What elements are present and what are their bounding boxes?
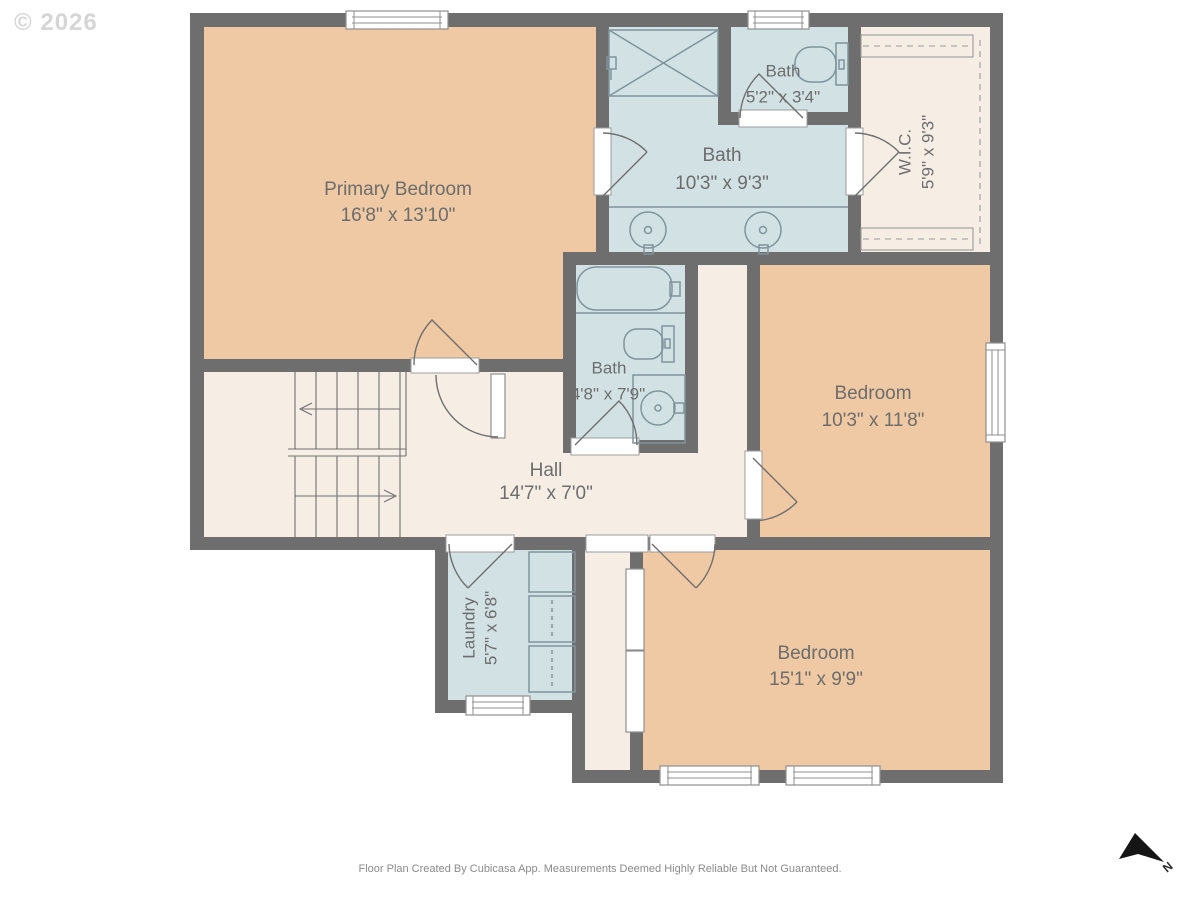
closet-door-panel <box>626 651 644 732</box>
door-opening <box>745 451 762 519</box>
window <box>466 696 530 715</box>
room-dims-wic: 5'9" x 9'3" <box>918 115 937 189</box>
door-opening <box>571 438 639 455</box>
floor-plan: Primary Bedroom 16'8" x 13'10" Bath 10'3… <box>0 0 1200 900</box>
room-label-hall: Hall <box>530 460 563 481</box>
room-dims-bedroom-south: 15'1" x 9'9" <box>769 669 863 690</box>
room-label-bedroom-east: Bedroom <box>834 383 911 404</box>
room-dims-bedroom-east: 10'3" x 11'8" <box>822 410 925 431</box>
room-label-bath-main: Bath <box>702 145 741 166</box>
room-dims-hall: 14'7" x 7'0" <box>499 483 593 504</box>
closet-door-panel <box>626 569 644 650</box>
compass-north-icon <box>1119 833 1164 862</box>
room-dims-bath-middle: 4'8" x 7'9" <box>571 384 645 403</box>
room-label-bath-middle: Bath <box>592 358 627 377</box>
window <box>748 11 809 29</box>
footer-disclaimer: Floor Plan Created By Cubicasa App. Meas… <box>358 863 841 875</box>
room-label-bath-small: Bath <box>766 61 801 80</box>
copyright-watermark: © 2026 <box>14 9 98 36</box>
floor-plan-canvas: Primary Bedroom 16'8" x 13'10" Bath 10'3… <box>0 0 1200 900</box>
opening-corridor <box>586 535 648 552</box>
room-dims-bath-small: 5'2" x 3'4" <box>746 87 820 106</box>
window <box>786 766 880 785</box>
room-label-primary-bedroom: Primary Bedroom <box>324 179 472 200</box>
room-label-bedroom-south: Bedroom <box>777 643 854 664</box>
door-opening <box>446 535 514 552</box>
compass: N <box>1119 833 1176 875</box>
window <box>986 343 1005 442</box>
room-hall-nook <box>691 258 753 548</box>
window <box>346 11 448 29</box>
window <box>660 766 759 785</box>
room-label-laundry: Laundry <box>459 597 478 659</box>
door-opening <box>846 128 863 195</box>
room-label-wic: W.I.C. <box>895 129 914 175</box>
room-dims-bath-main: 10'3" x 9'3" <box>675 173 769 194</box>
room-dims-primary-bedroom: 16'8" x 13'10" <box>341 205 456 226</box>
door-opening <box>594 128 611 195</box>
door-opening <box>411 358 479 373</box>
room-dims-laundry: 5'7" x 6'8" <box>481 591 500 665</box>
compass-north-label: N <box>1160 859 1176 875</box>
door-opening <box>650 535 715 552</box>
